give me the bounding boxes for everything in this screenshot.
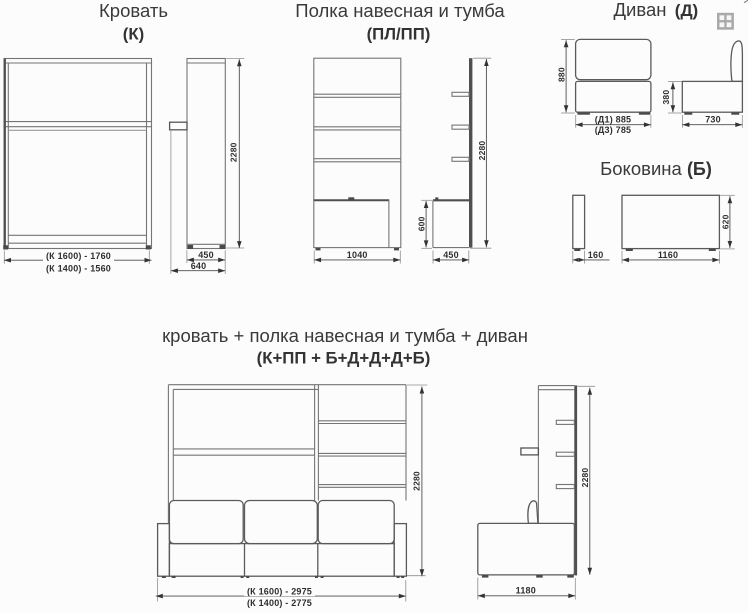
svg-text:кровать + полка навесная и тум: кровать + полка навесная и тумба + диван: [162, 325, 528, 346]
svg-text:1160: 1160: [658, 250, 678, 260]
svg-text:Диван: Диван: [614, 0, 667, 20]
svg-text:1040: 1040: [347, 250, 368, 260]
svg-text:Кровать: Кровать: [99, 0, 168, 21]
svg-text:2280: 2280: [229, 142, 239, 162]
svg-text:Полка навесная и тумба: Полка навесная и тумба: [295, 0, 505, 21]
svg-text:(К 1400) - 1560: (К 1400) - 1560: [46, 263, 111, 273]
svg-text:2280: 2280: [580, 468, 590, 488]
svg-text:2280: 2280: [412, 471, 422, 491]
svg-text:(К 1600) - 1760: (К 1600) - 1760: [46, 251, 111, 261]
svg-text:(К+ПП + Б+Д+Д+Д+Б): (К+ПП + Б+Д+Д+Д+Б): [257, 349, 431, 368]
svg-text:620: 620: [720, 214, 730, 229]
svg-text:1180: 1180: [516, 586, 536, 596]
svg-text:(Д3) 785: (Д3) 785: [595, 125, 632, 135]
svg-text:640: 640: [191, 261, 207, 271]
svg-text:2280: 2280: [477, 141, 487, 161]
svg-text:(ПЛ/ПП): (ПЛ/ПП): [367, 25, 431, 44]
svg-text:(Д): (Д): [675, 1, 698, 20]
svg-text:(К): (К): [123, 25, 144, 44]
svg-text:Боковина (Б): Боковина (Б): [600, 158, 712, 179]
svg-text:450: 450: [198, 250, 214, 260]
svg-text:160: 160: [588, 250, 604, 260]
svg-text:(К 1400) - 2775: (К 1400) - 2775: [247, 598, 312, 608]
svg-text:(К 1600) - 2975: (К 1600) - 2975: [247, 587, 312, 597]
svg-text:600: 600: [417, 216, 427, 231]
svg-text:(Д1) 885: (Д1) 885: [595, 115, 632, 125]
svg-text:730: 730: [705, 115, 721, 125]
svg-text:450: 450: [443, 250, 459, 260]
svg-text:880: 880: [557, 67, 567, 82]
svg-text:380: 380: [661, 90, 671, 105]
